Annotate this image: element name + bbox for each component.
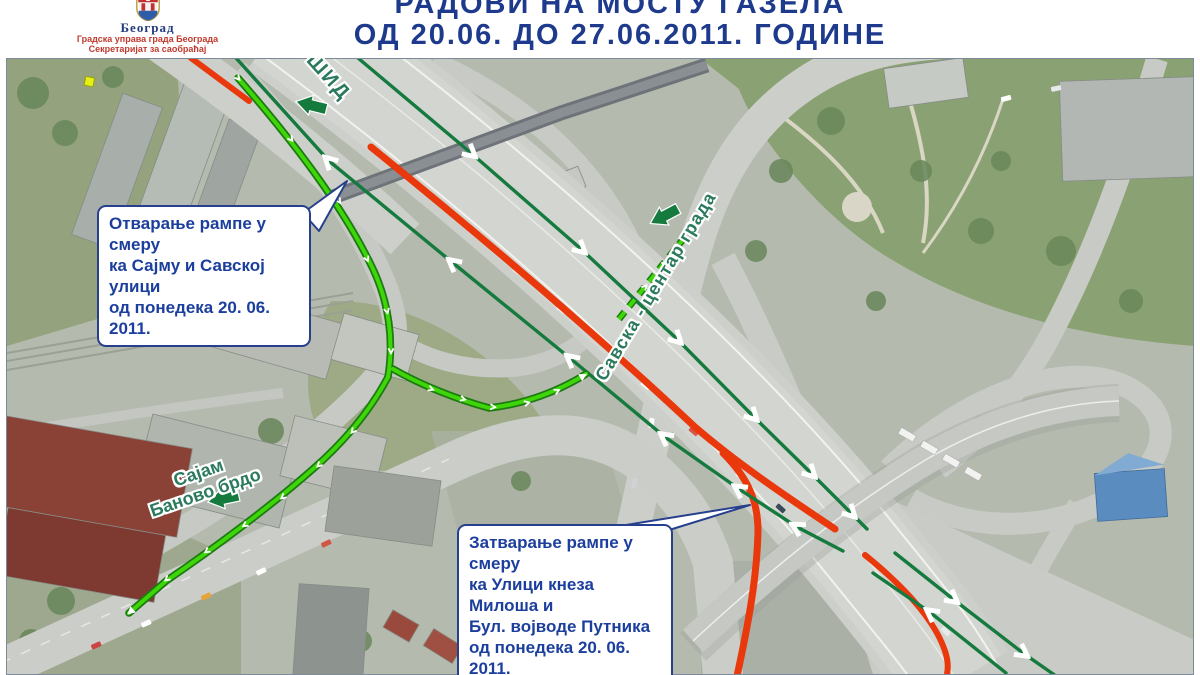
callout-closed-ramp-line3: Бул. војводе Путника (469, 616, 661, 637)
callout-closed-ramp-line1: Затварање рампе у смеру (469, 532, 661, 574)
belgrade-coat-of-arms-icon (135, 0, 161, 21)
callout-open-ramp-line2: ка Сајму и Савској улици (109, 255, 299, 297)
city-name: Београд (55, 21, 240, 34)
callout-closed-ramp-line2: ка Улици кнеза Милоша и (469, 574, 661, 616)
header: Београд Градска управа града Београда Се… (0, 0, 1200, 58)
title-line-1: РАДОВИ НА МОСТУ ГАЗЕЛА (300, 0, 940, 20)
belgrade-logo: Београд Градска управа града Београда Се… (55, 0, 240, 54)
org-line-2: Секретаријат за саобраћај (55, 44, 240, 54)
callout-closed-ramp: Затварање рампе у смеру ка Улици кнеза М… (457, 524, 673, 675)
org-line-1: Градска управа града Београда (55, 34, 240, 44)
page-title: РАДОВИ НА МОСТУ ГАЗЕЛА ОД 20.06. ДО 27.0… (300, 0, 940, 51)
callout-closed-ramp-line4: од понедека 20. 06. 2011. (469, 637, 661, 675)
callout-open-ramp: Отварање рампе у смеру ка Сајму и Савско… (97, 205, 311, 347)
screen: Београд Градска управа града Београда Се… (0, 0, 1200, 675)
callout-open-ramp-line1: Отварање рампе у смеру (109, 213, 299, 255)
title-line-2: ОД 20.06. ДО 27.06.2011. ГОДИНЕ (300, 20, 940, 51)
point-marker (84, 76, 95, 87)
callout-open-ramp-line3: од понедека 20. 06. 2011. (109, 297, 299, 339)
